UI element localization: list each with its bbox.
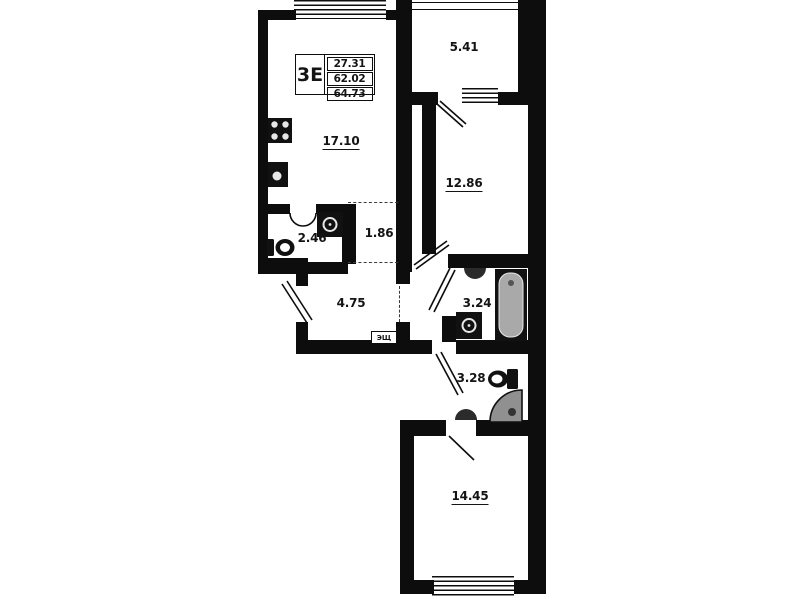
toilet-icon [267,239,295,256]
room-label-hallway: 4.75 [337,296,366,310]
kitchen-sink-icon [268,162,288,187]
toilet-icon [488,369,518,389]
sink-icon [464,268,486,279]
corner-shower-icon [490,390,522,422]
loggia-door-swing [437,101,466,127]
washing-machine-icon [456,312,482,339]
room-label-loggia: 5.41 [450,40,479,54]
stat-living-area: 27.31 [327,57,373,71]
unit-type-label: 3Е [296,55,325,94]
room-label-bathroom-small: 2.46 [298,231,327,245]
stat-total-area: 64.73 [327,87,373,101]
unit-stats-table: 3Е 27.31 62.02 64.73 [295,54,375,95]
room-label-bedroom-1: 12.86 [446,176,483,192]
entry-door-swing [282,281,312,323]
bedroom-1-door-swing [414,241,449,269]
electrical-panel-label: ЭЩ [371,331,397,344]
bathtub-icon [495,269,527,341]
room-label-bathroom: 3.24 [463,296,492,310]
room-label-kitchen-living: 17.10 [323,134,360,150]
bedroom-2-door-swing [449,436,474,460]
sink-icon [455,409,477,420]
plan-graphics [0,0,799,600]
bathroom-door-swing [429,268,455,312]
room-label-wc-shower: 3.28 [457,371,486,385]
floor-plan: 3Е 27.31 62.02 64.73 ЭЩ 5.41 17.10 12.86… [0,0,799,600]
bathroom-small-door-swing [290,213,316,226]
room-label-wardrobe: 1.86 [365,226,394,240]
room-label-bedroom-2: 14.45 [452,489,489,505]
stat-apartment-area: 62.02 [327,72,373,86]
stove-icon [268,118,292,143]
